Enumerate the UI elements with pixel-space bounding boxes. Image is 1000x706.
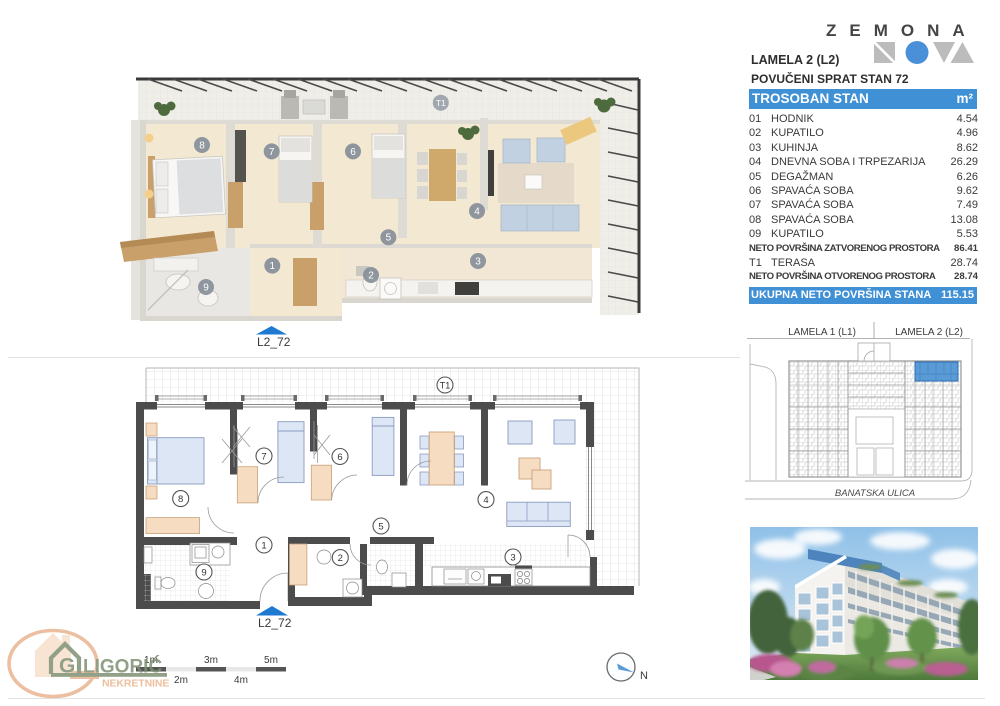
svg-text:3m: 3m <box>204 655 218 666</box>
svg-text:BANATSKA ULICA: BANATSKA ULICA <box>835 488 915 499</box>
svg-text:4: 4 <box>474 207 480 218</box>
svg-text:1: 1 <box>261 540 266 551</box>
svg-text:6: 6 <box>350 147 356 158</box>
svg-text:LAMELA 1 (L1): LAMELA 1 (L1) <box>788 327 856 338</box>
svg-text:T1: T1 <box>440 381 451 391</box>
svg-text:4m: 4m <box>234 675 248 686</box>
svg-text:9: 9 <box>203 283 209 294</box>
svg-text:7: 7 <box>269 147 275 158</box>
svg-text:3: 3 <box>475 257 481 268</box>
svg-text:2: 2 <box>338 553 343 564</box>
svg-text:NEKRETNINE: NEKRETNINE <box>102 678 169 690</box>
svg-text:4: 4 <box>483 495 488 506</box>
svg-text:8: 8 <box>178 494 183 505</box>
svg-text:3: 3 <box>510 552 515 563</box>
svg-text:5: 5 <box>378 521 383 532</box>
svg-text:T1: T1 <box>436 98 446 108</box>
svg-text:1: 1 <box>270 261 276 272</box>
svg-text:7: 7 <box>261 451 266 462</box>
svg-text:5: 5 <box>386 233 392 244</box>
svg-text:2: 2 <box>368 271 374 282</box>
svg-text:N: N <box>640 670 648 682</box>
svg-text:5m: 5m <box>264 655 278 666</box>
svg-text:LAMELA 2 (L2): LAMELA 2 (L2) <box>895 327 963 338</box>
svg-text:6: 6 <box>337 452 342 463</box>
svg-text:8: 8 <box>199 141 205 152</box>
svg-text:9: 9 <box>201 567 206 578</box>
